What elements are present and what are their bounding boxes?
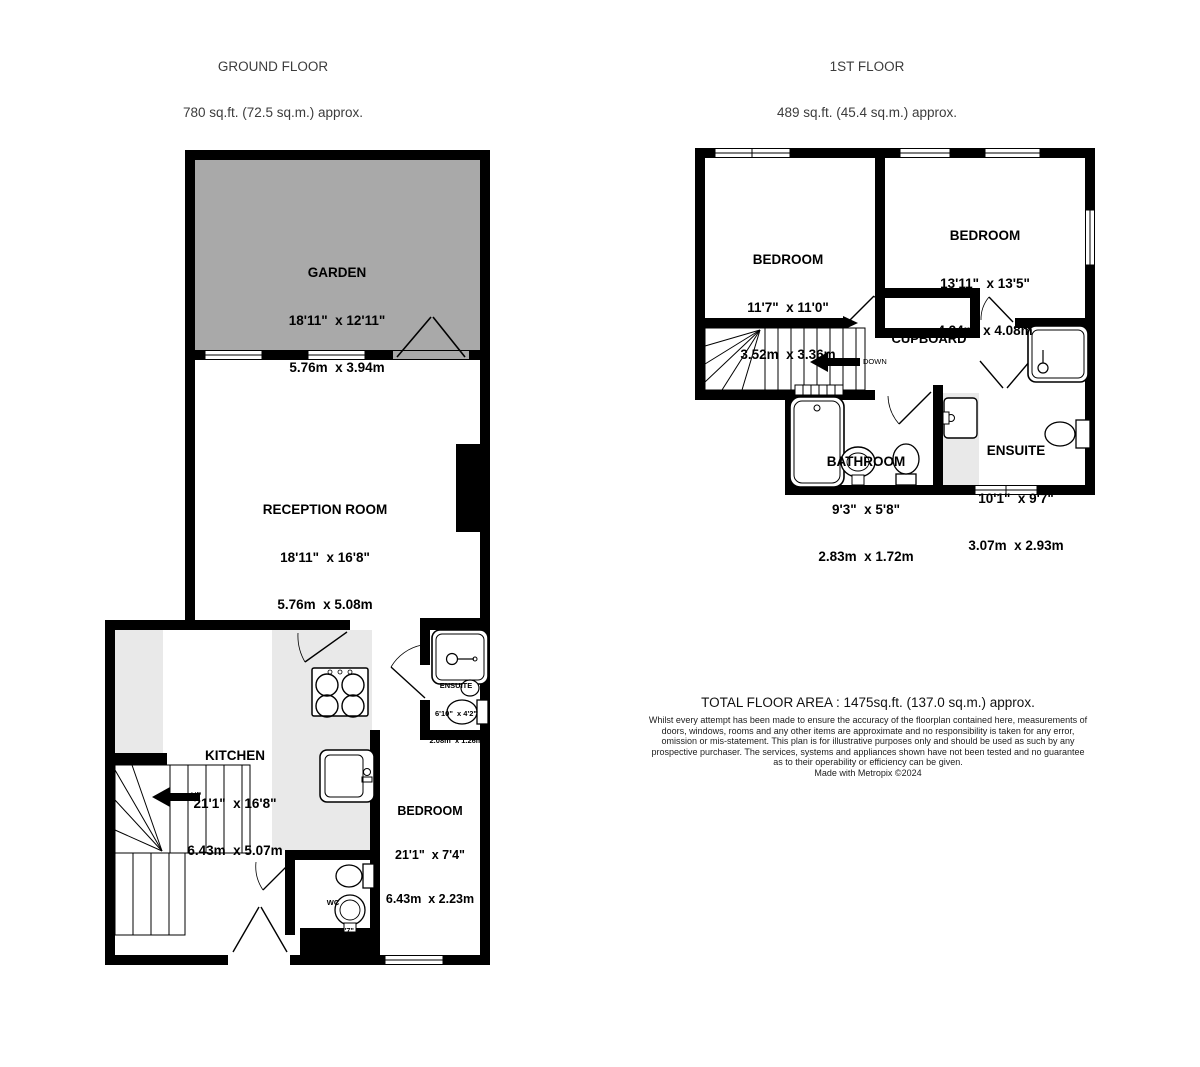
- door-arc: [391, 645, 425, 698]
- room-metric: 5.76m x 5.08m: [263, 597, 388, 613]
- ground-floor-header: GROUND FLOOR 780 sq.ft. (72.5 sq.m.) app…: [183, 29, 363, 135]
- window: [715, 149, 790, 158]
- garden-label: GARDEN 18'11" x 12'11" 5.76m x 3.94m: [289, 233, 386, 392]
- room-name: GARDEN: [289, 265, 386, 281]
- window: [985, 149, 1040, 158]
- shower-icon: [1028, 326, 1088, 382]
- room-imperial: 13'11" x 13'5": [937, 276, 1032, 292]
- window: [385, 956, 443, 965]
- sink-icon: [320, 750, 374, 802]
- room-imperial: 21'1" x 16'8": [187, 796, 282, 812]
- room-metric: 2.83m x 1.72m: [818, 549, 913, 565]
- room-imperial: 18'11" x 12'11": [289, 313, 386, 329]
- room-metric: 3.52m x 3.36m: [740, 347, 835, 363]
- door-arc: [888, 392, 931, 424]
- floor-area: 780 sq.ft. (72.5 sq.m.) approx.: [183, 105, 363, 120]
- room-imperial: 4'10" x 4'7": [307, 926, 360, 935]
- room-metric: 2.08m x 1.26m: [430, 736, 483, 745]
- window: [205, 351, 262, 360]
- bathroom-label: BATHROOM 9'3" x 5'8" 2.83m x 1.72m: [818, 422, 913, 581]
- room-metric: 1.46m x 1.40m: [307, 953, 360, 962]
- made-with-text: Made with Metropix ©2024: [648, 768, 1088, 780]
- room-name: BEDROOM: [740, 252, 835, 268]
- disclaimer-text: Whilst every attempt has been made to en…: [648, 715, 1088, 768]
- room-metric: 3.07m x 2.93m: [968, 538, 1063, 554]
- cupboard-label: CUPBOARD: [891, 301, 966, 361]
- room-imperial: 18'11" x 16'8": [263, 550, 388, 566]
- wc-label: WC 4'10" x 4'7" 1.46m x 1.40m: [307, 880, 360, 971]
- room-name: ENSUITE: [430, 681, 483, 690]
- down-stairs-label: DOWN: [863, 357, 887, 366]
- chimney-breast: [456, 444, 480, 532]
- room-name: CUPBOARD: [891, 331, 966, 346]
- room-name: RECEPTION ROOM: [263, 502, 388, 518]
- window: [1086, 210, 1095, 265]
- room-imperial: 11'7" x 11'0": [740, 300, 835, 316]
- kitchen-label: KITCHEN 21'1" x 16'8" 6.43m x 5.07m: [187, 716, 282, 875]
- room-name: KITCHEN: [187, 748, 282, 764]
- room-name: WC: [307, 898, 360, 907]
- room-metric: 6.43m x 2.23m: [386, 892, 474, 907]
- floor-title: GROUND FLOOR: [183, 59, 363, 74]
- room-imperial: 9'3" x 5'8": [818, 502, 913, 518]
- bedroom-left-label: BEDROOM 11'7" x 11'0" 3.52m x 3.36m: [740, 220, 835, 379]
- room-metric: 6.43m x 5.07m: [187, 843, 282, 859]
- ensuite-ground-label: ENSUITE 6'10" x 4'2" 2.08m x 1.26m: [430, 663, 483, 754]
- room-name: BEDROOM: [937, 228, 1032, 244]
- room-imperial: 21'1" x 7'4": [386, 848, 474, 863]
- room-imperial: 6'10" x 4'2": [430, 709, 483, 718]
- bedroom-ground-label: BEDROOM 21'1" x 7'4" 6.43m x 2.23m: [386, 774, 474, 922]
- room-imperial: 10'1" x 9'7": [968, 491, 1063, 507]
- radiator-icon: [795, 385, 843, 395]
- door-arc: [980, 361, 1030, 388]
- footer-block: TOTAL FLOOR AREA : 1475sq.ft. (137.0 sq.…: [648, 695, 1088, 779]
- up-stairs-label: UP: [191, 790, 201, 799]
- window: [900, 149, 950, 158]
- floor-title: 1ST FLOOR: [777, 59, 957, 74]
- hob-icon: [312, 668, 368, 717]
- room-metric: 5.76m x 3.94m: [289, 360, 386, 376]
- ensuite-first-label: ENSUITE 10'1" x 9'7" 3.07m x 2.93m: [968, 411, 1063, 570]
- room-name: BATHROOM: [818, 454, 913, 470]
- reception-room-label: RECEPTION ROOM 18'11" x 16'8" 5.76m x 5.…: [263, 470, 388, 629]
- first-floor-header: 1ST FLOOR 489 sq.ft. (45.4 sq.m.) approx…: [777, 29, 957, 135]
- floor-area: 489 sq.ft. (45.4 sq.m.) approx.: [777, 105, 957, 120]
- room-name: ENSUITE: [968, 443, 1063, 459]
- floorplan-page: GROUND FLOOR 780 sq.ft. (72.5 sq.m.) app…: [0, 0, 1200, 1067]
- entrance-door: [228, 907, 290, 965]
- room-name: BEDROOM: [386, 804, 474, 819]
- total-floor-area: TOTAL FLOOR AREA : 1475sq.ft. (137.0 sq.…: [648, 695, 1088, 710]
